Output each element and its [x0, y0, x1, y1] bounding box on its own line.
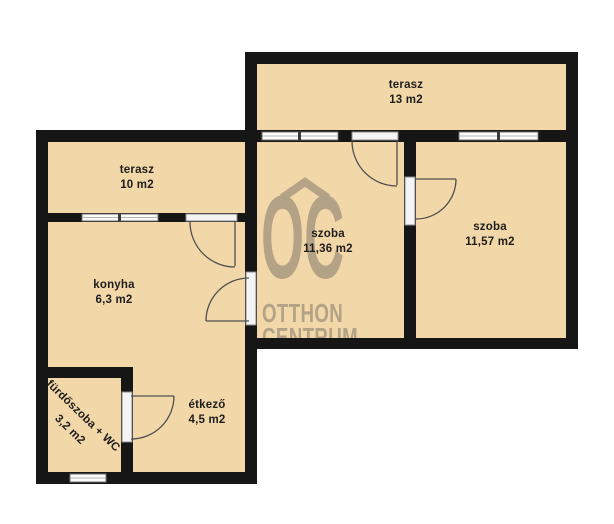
- wall-outer-left: [36, 130, 48, 484]
- watermark: OC OTTHON CENTRUM: [261, 172, 358, 352]
- window-terasz13-right: [459, 132, 538, 140]
- door-frame-konyha-szoba: [246, 272, 256, 325]
- room-area-terasz-10: 10 m2: [120, 179, 154, 191]
- room-name-etkezo: étkező: [189, 399, 226, 411]
- door-frame-furdoszoba: [122, 392, 132, 442]
- room-name-konyha: konyha: [93, 279, 135, 291]
- floor-plan: OC OTTHON CENTRUM: [0, 0, 614, 524]
- wall-outer-right: [566, 52, 578, 349]
- room-area-terasz-13: 13 m2: [389, 94, 423, 106]
- door-frame-szoba-szoba: [405, 177, 415, 225]
- wall-terasz13-top: [245, 52, 578, 64]
- wall-furdoszoba-top: [36, 367, 133, 378]
- room-area-szoba-11-36: 11,36 m2: [303, 243, 353, 255]
- room-area-szoba-11-57: 11,57 m2: [465, 236, 515, 248]
- door-frame-terasz13-szoba: [352, 132, 398, 140]
- floor-plan-canvas: OC OTTHON CENTRUM: [0, 0, 614, 524]
- room-area-konyha: 6,3 m2: [95, 294, 132, 306]
- window-terasz10: [82, 214, 158, 221]
- door-frame-terasz10-konyha: [186, 214, 237, 221]
- room-name-terasz-13: terasz: [389, 79, 423, 91]
- room-area-etkezo: 4,5 m2: [188, 414, 225, 426]
- wall-vertical-center: [245, 52, 257, 484]
- room-name-szoba-11-57: szoba: [473, 221, 507, 233]
- room-name-szoba-11-36: szoba: [311, 228, 345, 240]
- window-furdoszoba: [70, 474, 106, 482]
- wall-between-szobas: [404, 130, 416, 349]
- window-terasz13-left: [262, 132, 338, 140]
- room-name-terasz-10: terasz: [120, 164, 154, 176]
- wall-outer-bottom: [36, 472, 257, 484]
